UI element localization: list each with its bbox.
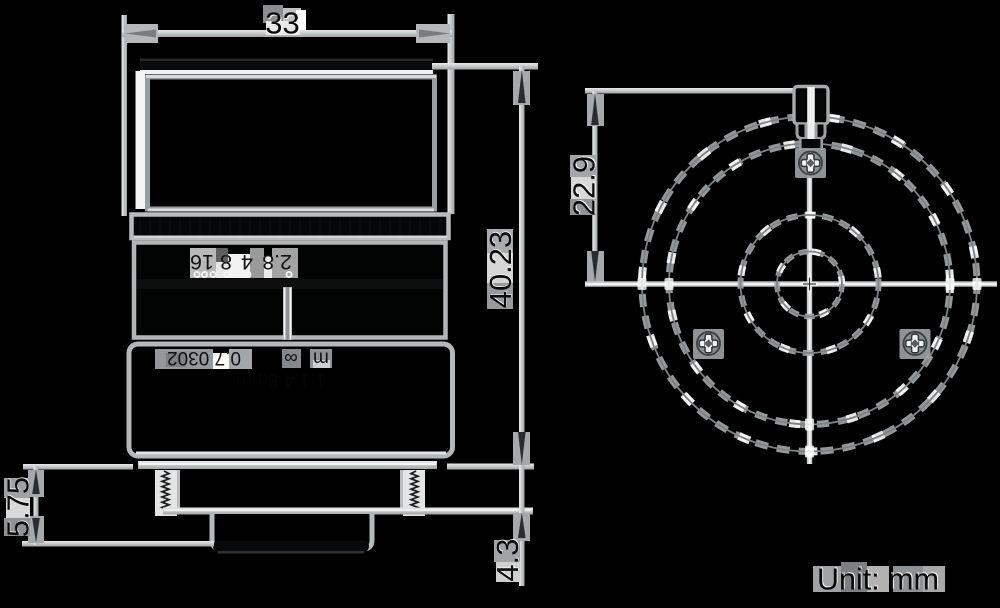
svg-text:m: m	[313, 348, 329, 369]
svg-text:16: 16	[190, 250, 214, 274]
svg-text:33: 33	[265, 6, 299, 41]
svg-text:4: 4	[241, 250, 253, 274]
svg-text:22.9: 22.9	[567, 156, 602, 216]
svg-text:40.23: 40.23	[483, 231, 518, 309]
svg-text:2.8: 2.8	[262, 250, 292, 274]
svg-text:∞: ∞	[284, 347, 298, 368]
svg-text:8: 8	[220, 250, 232, 274]
svg-text:Unit: mm: Unit: mm	[817, 563, 939, 597]
svg-text:1:1.4 8mm: 1:1.4 8mm	[236, 369, 326, 390]
svg-text:0.7 0302: 0.7 0302	[167, 347, 241, 368]
svg-text:5.75: 5.75	[0, 477, 35, 537]
svg-text:4.3: 4.3	[490, 538, 525, 581]
